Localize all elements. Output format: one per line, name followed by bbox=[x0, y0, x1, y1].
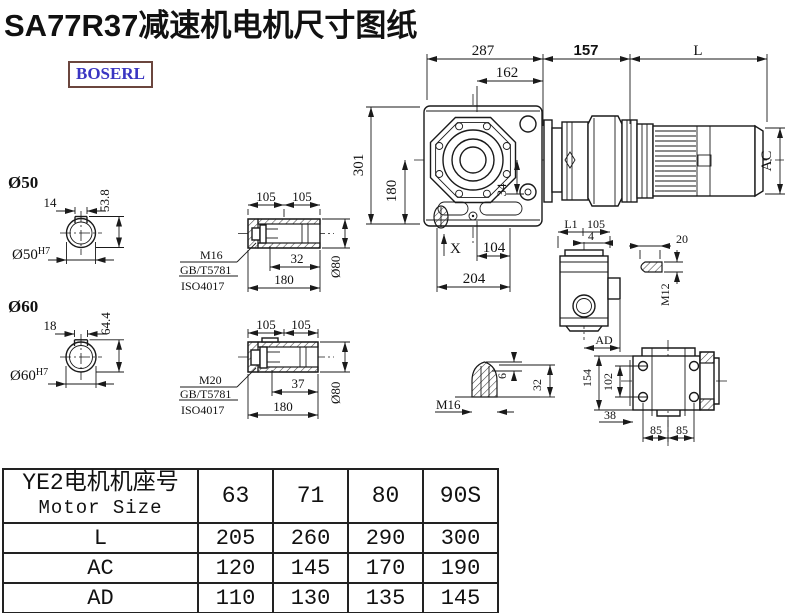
shaft-section-50: Ø50 14 53.8 Ø50H7 bbox=[8, 173, 124, 264]
dim-L: L bbox=[693, 43, 702, 59]
std2-a: ISO4017 bbox=[181, 279, 224, 293]
dim-85-2: 85 bbox=[676, 423, 688, 437]
dim-105-a1: 105 bbox=[256, 189, 276, 204]
table-cell: 71 bbox=[273, 469, 348, 523]
dim-32-plug: 32 bbox=[530, 379, 544, 391]
table-cell: 170 bbox=[348, 553, 423, 583]
motor-small-side-view: L1 105 4 AD bbox=[558, 217, 620, 352]
table-cell: 145 bbox=[423, 583, 498, 613]
thread-a: M16 bbox=[200, 248, 223, 262]
motor-side-outline bbox=[637, 124, 763, 198]
dim-180-b: 180 bbox=[273, 399, 293, 414]
std1-a: GB/T5781 bbox=[180, 263, 231, 277]
dim-104: 104 bbox=[483, 240, 506, 256]
dim-154: 154 bbox=[580, 369, 594, 387]
dim-AC: AC bbox=[759, 151, 775, 172]
thread-b: M20 bbox=[199, 373, 222, 387]
dim-162: 162 bbox=[496, 65, 519, 81]
table-cell: 130 bbox=[273, 583, 348, 613]
table-cell: 63 bbox=[198, 469, 273, 523]
page-title: SA77R37减速机电机尺寸图纸 bbox=[4, 0, 417, 45]
label-x: X bbox=[450, 241, 461, 257]
table-cell: 260 bbox=[273, 523, 348, 553]
dim-157: 157 bbox=[573, 42, 598, 59]
motor-dimension-table: YE2电机机座号 Motor Size 63 71 80 90S L 205 2… bbox=[2, 468, 499, 613]
table-cell: 135 bbox=[348, 583, 423, 613]
table-cell: 205 bbox=[198, 523, 273, 553]
key-detail: 20 M12 bbox=[629, 232, 688, 306]
bore-50: Ø50H7 bbox=[12, 246, 50, 263]
dim-d80-b: Ø80 bbox=[328, 382, 343, 404]
dim-85-1: 85 bbox=[650, 423, 662, 437]
dim-105-b2: 105 bbox=[291, 317, 311, 332]
dim-4: 4 bbox=[588, 229, 594, 243]
dim-AD: AD bbox=[595, 333, 613, 347]
dim-20: 20 bbox=[676, 232, 688, 246]
hollow-shaft-detail-b: 105 105 37 180 Ø80 M20 GB/T5781 ISO4017 bbox=[179, 317, 350, 419]
row-label: L bbox=[3, 523, 198, 553]
std2-b: ISO4017 bbox=[181, 403, 224, 417]
dim-key-w-50: 14 bbox=[44, 195, 58, 210]
table-header-cell: YE2电机机座号 Motor Size bbox=[3, 469, 198, 523]
table-cell: 300 bbox=[423, 523, 498, 553]
plug-detail: 6 32 M16 bbox=[435, 354, 555, 412]
dim-204: 204 bbox=[463, 271, 486, 287]
table-cell: 145 bbox=[273, 553, 348, 583]
table-cell: 190 bbox=[423, 553, 498, 583]
dim-key-h-50: 53.8 bbox=[97, 189, 112, 212]
dim-M12: M12 bbox=[658, 283, 672, 306]
dim-38: 38 bbox=[604, 408, 616, 422]
dim-102: 102 bbox=[601, 373, 615, 391]
dim-32-a: 32 bbox=[291, 251, 304, 266]
dim-180: 180 bbox=[384, 180, 400, 203]
row-label: AC bbox=[3, 553, 198, 583]
dim-287: 287 bbox=[472, 43, 495, 59]
dim-M16-plug: M16 bbox=[436, 397, 461, 412]
hollow-shaft-detail-a: 105 105 32 180 Ø80 M16 GB/T5781 ISO4017 bbox=[179, 189, 350, 293]
header-cn: YE2电机机座号 bbox=[4, 471, 197, 496]
table-cell: 80 bbox=[348, 469, 423, 523]
table-cell: 110 bbox=[198, 583, 273, 613]
dim-37-b: 37 bbox=[292, 376, 306, 391]
dim-301: 301 bbox=[351, 154, 367, 177]
header-en: Motor Size bbox=[4, 496, 197, 521]
brand-logo: BOSERL bbox=[68, 61, 153, 88]
dim-d80-a: Ø80 bbox=[328, 256, 343, 278]
dim-key-h-60: 64.4 bbox=[98, 312, 113, 335]
table-cell: 120 bbox=[198, 553, 273, 583]
std1-b: GB/T5781 bbox=[180, 387, 231, 401]
shaft60-label: Ø60 bbox=[8, 297, 38, 316]
drawing-page: 287 162 157 L AC 301 180 34 X 104 204 Ø5… bbox=[0, 0, 800, 613]
dim-34: 34 bbox=[494, 183, 509, 197]
row-label: AD bbox=[3, 583, 198, 613]
shaft-section-60: Ø60 18 64.4 Ø60H7 bbox=[8, 297, 124, 388]
adapter-housing bbox=[544, 116, 637, 206]
dim-105-b1: 105 bbox=[256, 317, 276, 332]
dim-180-a: 180 bbox=[274, 272, 294, 287]
bore-60: Ø60H7 bbox=[10, 367, 48, 384]
mounting-face-view: 102 154 38 85 85 bbox=[580, 340, 730, 448]
dim-key-w-60: 18 bbox=[44, 318, 57, 333]
dim-6: 6 bbox=[495, 373, 509, 379]
table-cell: 290 bbox=[348, 523, 423, 553]
dim-105-a2: 105 bbox=[292, 189, 312, 204]
table-cell: 90S bbox=[423, 469, 498, 523]
dim-L1: L1 bbox=[564, 217, 577, 231]
shaft50-label: Ø50 bbox=[8, 173, 38, 192]
gearbox-front-view bbox=[424, 106, 542, 228]
